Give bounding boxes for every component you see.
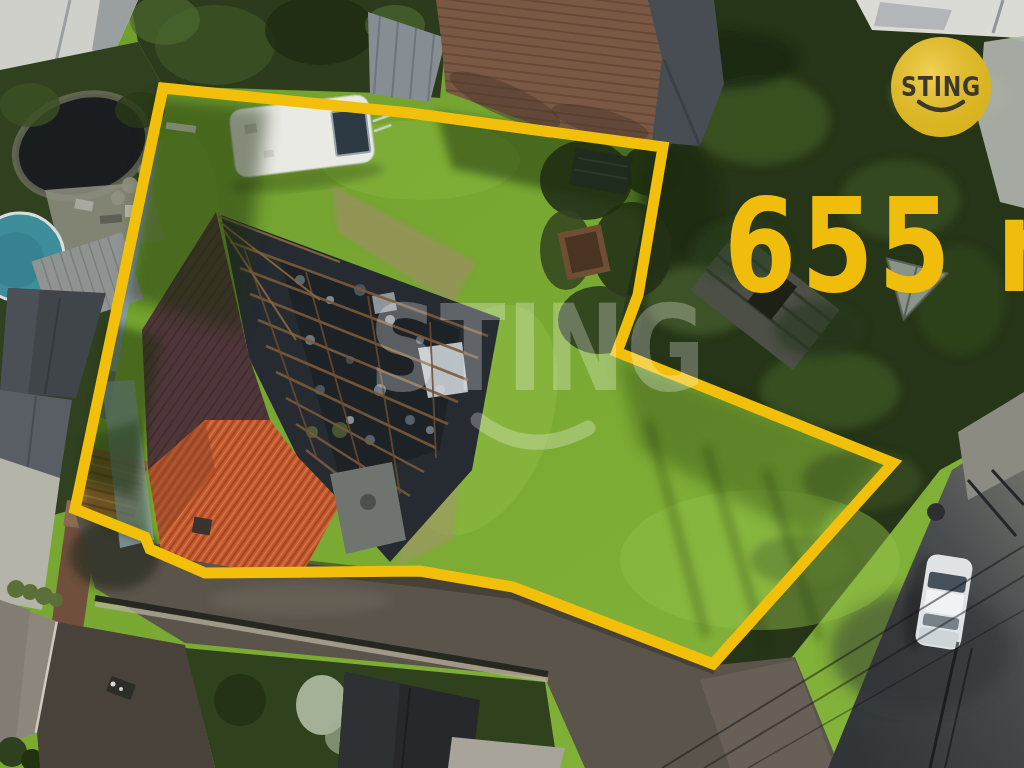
real-estate-aerial-photo-page: STING 655 m STING — [0, 0, 1024, 768]
area-label: 655 m — [724, 171, 1024, 322]
watermark-text: STING — [369, 278, 706, 418]
sting-logo: STING — [891, 37, 991, 137]
logo-text: STING — [901, 71, 981, 103]
chimney-pad — [192, 517, 213, 536]
watermark: STING — [369, 278, 706, 442]
manhole — [927, 503, 945, 521]
solar-panel — [331, 108, 370, 156]
aerial-photo: STING 655 m STING — [0, 0, 1024, 768]
